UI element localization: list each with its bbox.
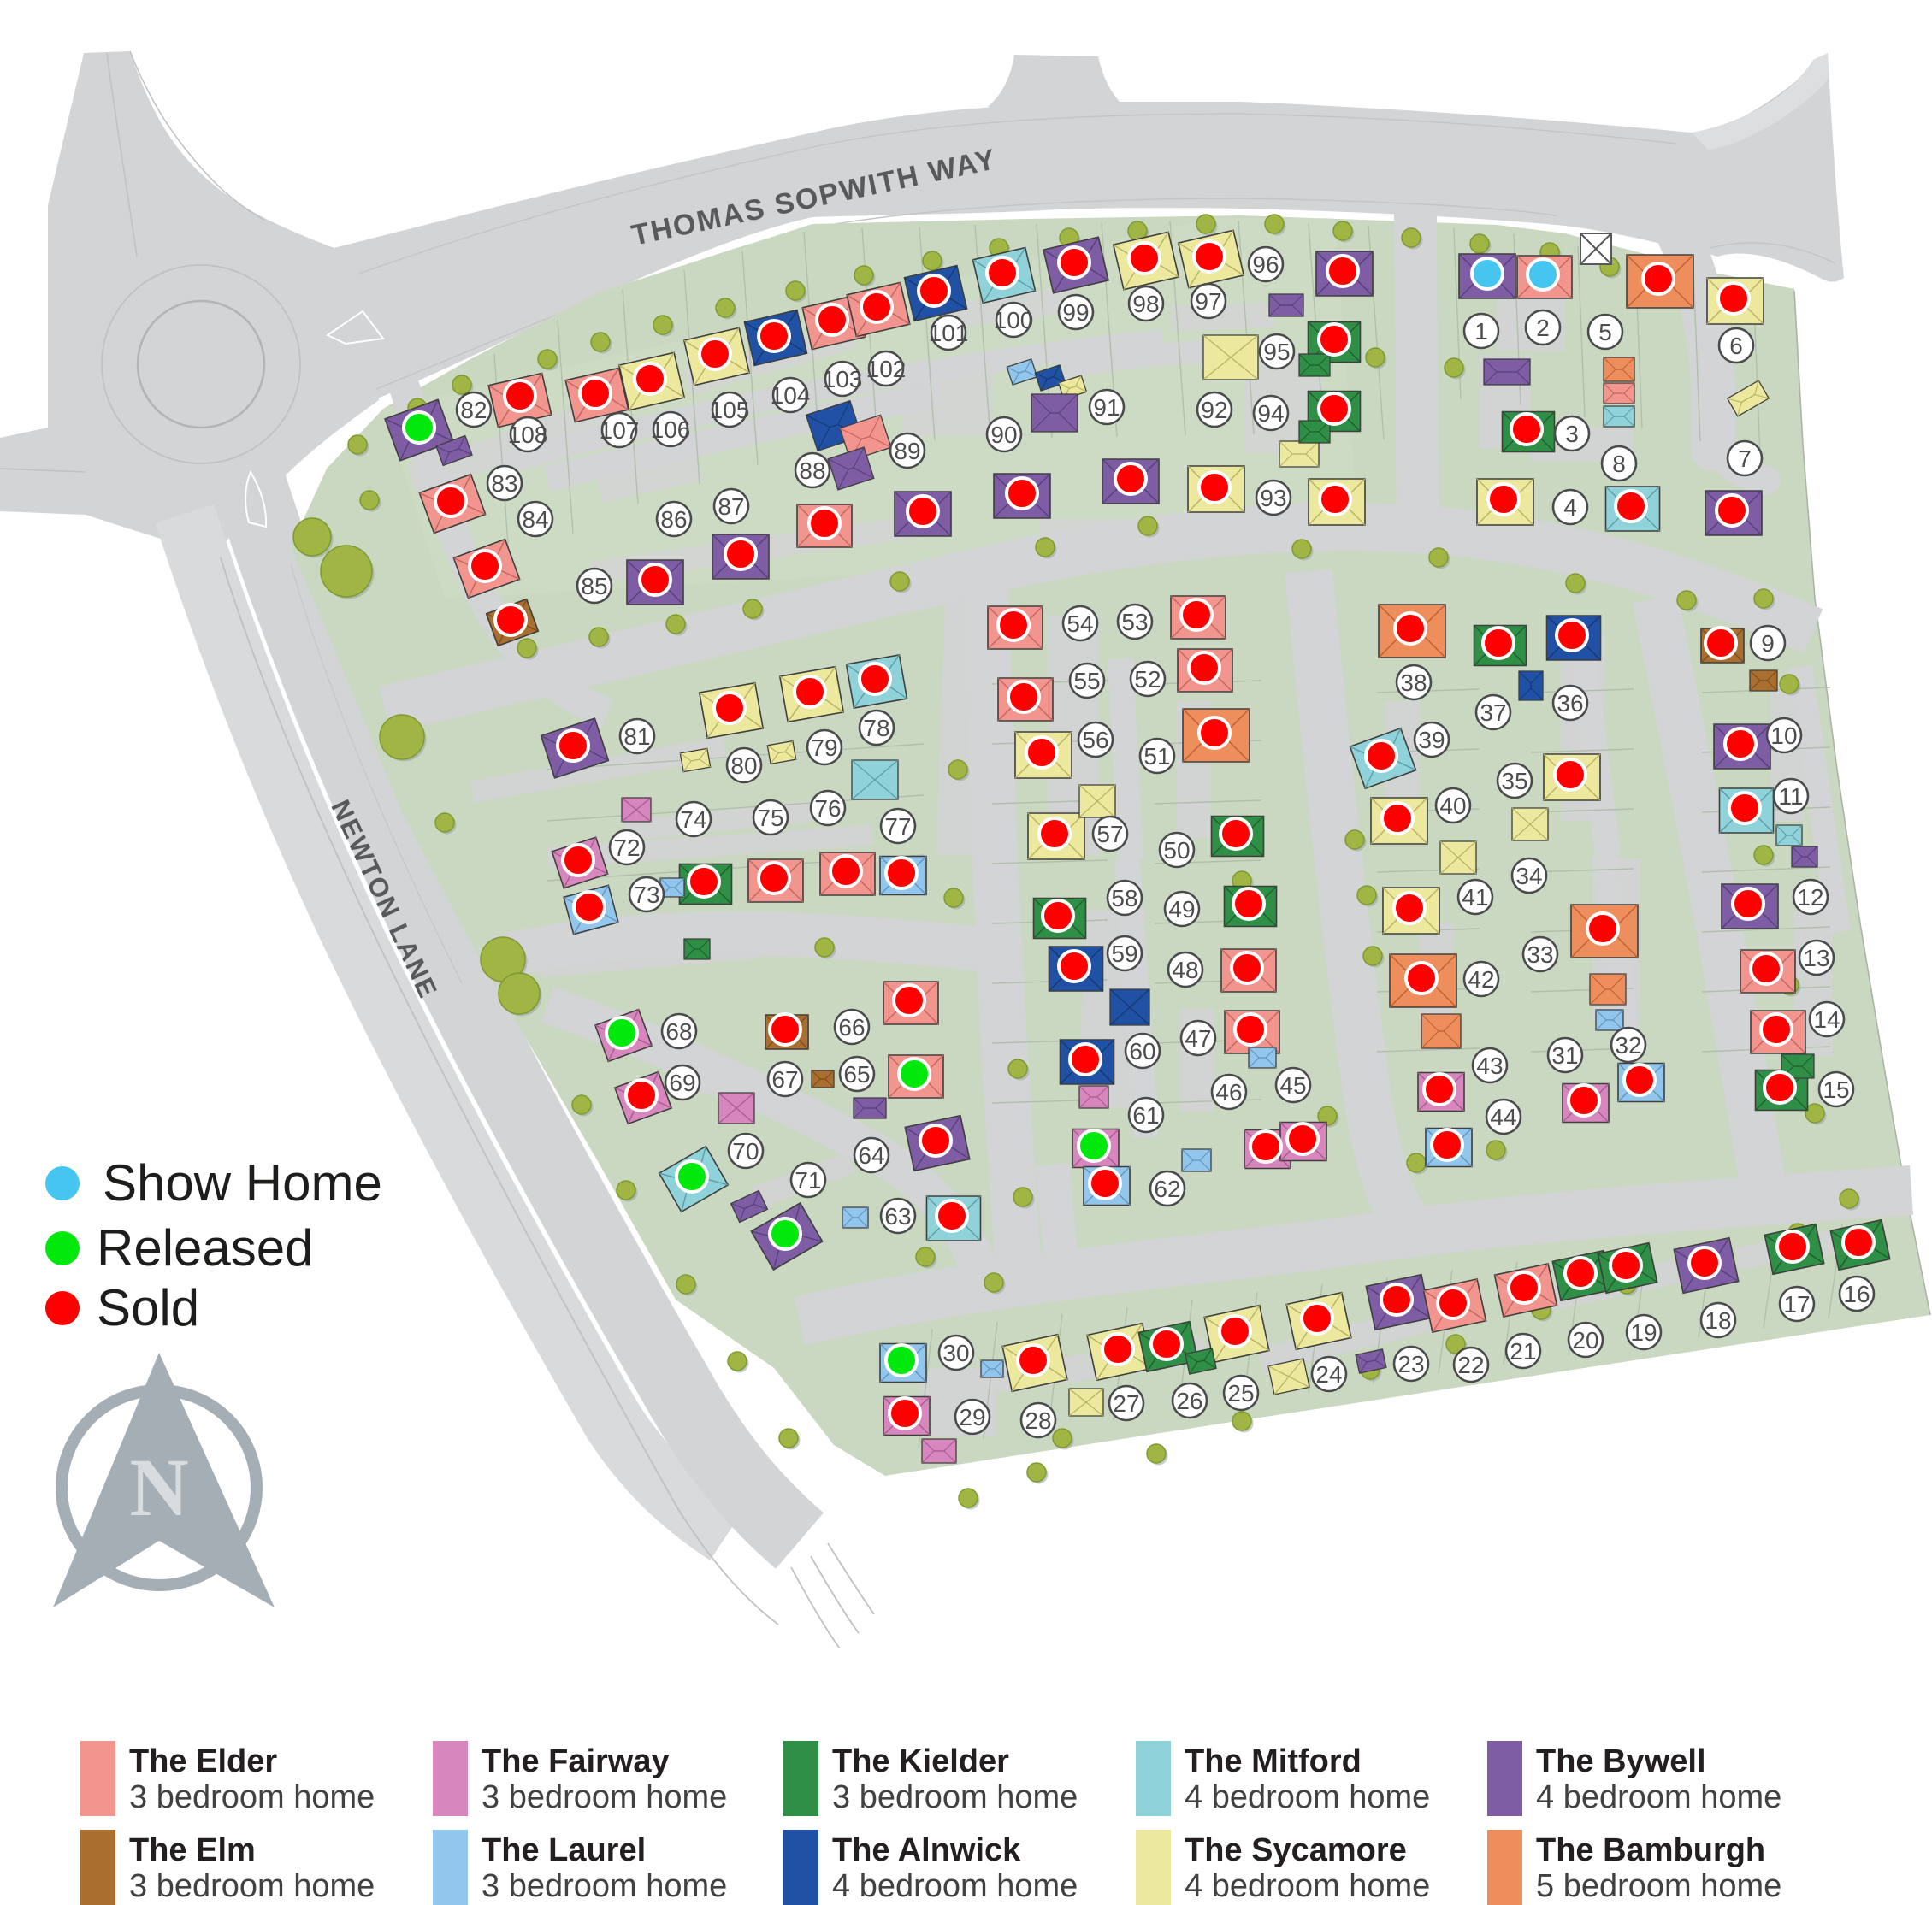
svg-text:28: 28	[1025, 1407, 1051, 1434]
svg-text:30: 30	[942, 1340, 969, 1366]
svg-text:63: 63	[884, 1203, 911, 1230]
svg-text:3 bedroom home: 3 bedroom home	[129, 1868, 375, 1904]
svg-text:108: 108	[508, 422, 548, 448]
svg-text:20: 20	[1572, 1327, 1598, 1354]
svg-text:The Elm: The Elm	[129, 1832, 256, 1868]
svg-text:67: 67	[771, 1066, 798, 1093]
svg-text:The Mitford: The Mitford	[1185, 1743, 1362, 1779]
svg-text:4 bedroom home: 4 bedroom home	[1185, 1779, 1430, 1815]
svg-text:26: 26	[1176, 1388, 1202, 1414]
svg-text:3 bedroom home: 3 bedroom home	[832, 1779, 1078, 1815]
svg-text:84: 84	[522, 506, 548, 533]
svg-text:38: 38	[1400, 669, 1427, 696]
svg-text:N: N	[129, 1442, 188, 1533]
svg-text:5: 5	[1598, 319, 1612, 345]
svg-text:14: 14	[1813, 1006, 1840, 1033]
svg-text:36: 36	[1557, 690, 1583, 717]
svg-text:23: 23	[1397, 1351, 1424, 1377]
svg-text:13: 13	[1803, 945, 1829, 971]
svg-text:60: 60	[1129, 1038, 1155, 1065]
svg-text:5 bedroom home: 5 bedroom home	[1536, 1868, 1781, 1904]
svg-text:92: 92	[1201, 397, 1227, 423]
svg-text:58: 58	[1111, 885, 1137, 911]
svg-text:100: 100	[994, 307, 1034, 333]
svg-text:62: 62	[1154, 1176, 1180, 1202]
svg-text:4 bedroom home: 4 bedroom home	[832, 1868, 1078, 1904]
svg-text:46: 46	[1215, 1079, 1242, 1106]
svg-text:19: 19	[1630, 1319, 1657, 1346]
svg-text:The Bywell: The Bywell	[1536, 1743, 1706, 1779]
svg-text:9: 9	[1761, 630, 1775, 657]
svg-text:41: 41	[1462, 884, 1488, 911]
svg-text:79: 79	[811, 734, 837, 761]
svg-text:97: 97	[1195, 288, 1221, 315]
svg-text:34: 34	[1515, 863, 1542, 889]
svg-text:10: 10	[1770, 722, 1797, 749]
svg-text:50: 50	[1163, 837, 1190, 864]
svg-text:55: 55	[1073, 668, 1100, 694]
svg-text:107: 107	[600, 417, 640, 444]
svg-text:The Elder: The Elder	[129, 1743, 277, 1779]
svg-text:74: 74	[680, 806, 706, 833]
svg-text:77: 77	[884, 813, 911, 840]
svg-text:37: 37	[1480, 699, 1506, 726]
svg-text:76: 76	[814, 795, 841, 822]
svg-text:3: 3	[1565, 421, 1579, 447]
svg-text:8: 8	[1612, 451, 1626, 477]
svg-text:69: 69	[669, 1070, 695, 1096]
svg-text:66: 66	[838, 1014, 865, 1041]
svg-text:39: 39	[1418, 727, 1445, 753]
svg-text:90: 90	[990, 422, 1017, 448]
svg-text:24: 24	[1315, 1361, 1342, 1388]
svg-text:31: 31	[1551, 1042, 1578, 1069]
svg-text:95: 95	[1263, 339, 1290, 365]
svg-text:15: 15	[1823, 1076, 1849, 1103]
svg-text:51: 51	[1143, 743, 1170, 770]
svg-text:6: 6	[1729, 333, 1743, 359]
svg-text:32: 32	[1615, 1032, 1641, 1059]
svg-text:88: 88	[799, 457, 825, 484]
svg-text:The Laurel: The Laurel	[482, 1832, 646, 1868]
svg-text:103: 103	[823, 366, 863, 392]
svg-text:53: 53	[1121, 609, 1148, 635]
svg-text:35: 35	[1501, 768, 1527, 794]
svg-text:43: 43	[1476, 1053, 1503, 1079]
svg-text:96: 96	[1252, 251, 1279, 278]
svg-text:94: 94	[1257, 400, 1284, 427]
svg-text:3 bedroom home: 3 bedroom home	[129, 1779, 375, 1815]
svg-text:99: 99	[1062, 299, 1089, 326]
svg-text:The Bamburgh: The Bamburgh	[1536, 1832, 1765, 1868]
svg-text:45: 45	[1279, 1072, 1306, 1099]
svg-text:75: 75	[757, 805, 783, 831]
svg-text:106: 106	[651, 416, 691, 443]
svg-text:83: 83	[491, 470, 517, 497]
svg-text:4: 4	[1563, 494, 1577, 521]
svg-text:27: 27	[1113, 1390, 1139, 1417]
svg-text:40: 40	[1439, 793, 1466, 819]
svg-text:29: 29	[959, 1404, 985, 1430]
svg-text:2: 2	[1536, 315, 1550, 341]
svg-text:64: 64	[858, 1142, 884, 1169]
svg-text:25: 25	[1227, 1380, 1254, 1407]
svg-text:33: 33	[1527, 941, 1553, 968]
svg-text:65: 65	[843, 1061, 870, 1088]
svg-text:The Kielder: The Kielder	[832, 1743, 1009, 1779]
svg-text:3 bedroom home: 3 bedroom home	[482, 1779, 727, 1815]
svg-text:21: 21	[1510, 1338, 1536, 1365]
svg-text:68: 68	[665, 1018, 692, 1045]
svg-text:70: 70	[732, 1138, 759, 1165]
svg-text:1: 1	[1474, 318, 1488, 345]
svg-text:22: 22	[1457, 1352, 1484, 1378]
svg-text:48: 48	[1172, 957, 1198, 983]
svg-text:7: 7	[1738, 445, 1752, 472]
svg-text:59: 59	[1111, 941, 1137, 967]
svg-text:Show Home: Show Home	[103, 1154, 382, 1212]
svg-text:42: 42	[1468, 966, 1494, 993]
svg-text:61: 61	[1132, 1102, 1159, 1129]
svg-text:105: 105	[710, 397, 750, 423]
svg-text:11: 11	[1778, 783, 1803, 810]
svg-text:89: 89	[894, 438, 920, 464]
svg-text:80: 80	[730, 752, 757, 779]
svg-text:4 bedroom home: 4 bedroom home	[1536, 1779, 1781, 1815]
svg-text:The Sycamore: The Sycamore	[1185, 1832, 1407, 1868]
svg-text:101: 101	[929, 320, 969, 346]
svg-text:82: 82	[460, 397, 487, 423]
svg-text:71: 71	[795, 1167, 821, 1194]
svg-text:86: 86	[660, 506, 687, 533]
svg-text:54: 54	[1066, 610, 1093, 637]
svg-text:72: 72	[613, 835, 640, 861]
svg-text:104: 104	[771, 382, 811, 409]
svg-text:56: 56	[1082, 727, 1108, 753]
svg-text:81: 81	[623, 723, 650, 750]
svg-text:47: 47	[1185, 1025, 1211, 1052]
svg-text:93: 93	[1260, 485, 1286, 511]
svg-text:The Fairway: The Fairway	[482, 1743, 670, 1779]
svg-text:85: 85	[581, 573, 607, 599]
svg-text:49: 49	[1168, 896, 1195, 923]
svg-text:91: 91	[1093, 394, 1120, 421]
svg-text:3 bedroom home: 3 bedroom home	[482, 1868, 727, 1904]
svg-text:52: 52	[1134, 666, 1161, 693]
svg-text:87: 87	[718, 493, 744, 520]
svg-text:16: 16	[1843, 1281, 1870, 1307]
svg-text:Released: Released	[97, 1219, 314, 1277]
svg-text:12: 12	[1797, 884, 1823, 911]
svg-text:44: 44	[1490, 1104, 1516, 1130]
svg-text:Sold: Sold	[97, 1279, 199, 1336]
svg-text:73: 73	[633, 882, 659, 908]
svg-text:18: 18	[1705, 1307, 1731, 1334]
svg-text:98: 98	[1132, 291, 1159, 317]
svg-text:102: 102	[866, 356, 907, 382]
svg-text:78: 78	[863, 715, 889, 741]
svg-text:The Alnwick: The Alnwick	[832, 1832, 1021, 1868]
svg-text:4 bedroom home: 4 bedroom home	[1185, 1868, 1430, 1904]
svg-text:57: 57	[1096, 821, 1123, 847]
svg-text:17: 17	[1783, 1291, 1810, 1318]
